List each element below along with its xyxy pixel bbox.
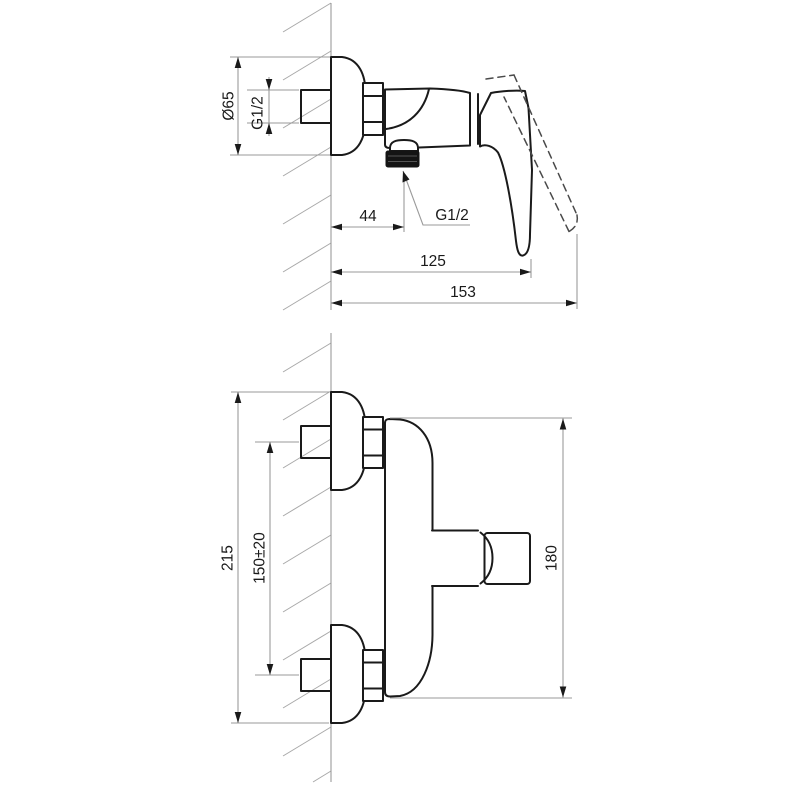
- dim-outlet-offset: 44: [331, 174, 404, 232]
- dim-text-outlet-thread: G1/2: [435, 207, 469, 224]
- wall-hatching-front: [283, 343, 331, 782]
- lever-handle-front: [431, 531, 531, 587]
- dim-text-outlet-offset: 44: [359, 208, 377, 225]
- drawing-page: Ø65 G1/2 44 G1/2: [0, 0, 800, 800]
- dim-depth-125: 125: [331, 253, 531, 278]
- mounting-nut: [363, 83, 383, 135]
- technical-drawing-canvas: Ø65 G1/2 44 G1/2: [0, 0, 800, 800]
- dim-text-inlet-thread: G1/2: [250, 96, 267, 130]
- mixer-body-front: [385, 419, 433, 697]
- lever-grip-end: [485, 533, 531, 584]
- outlet-knurled-nut: [386, 151, 419, 167]
- dim-text-flange-diameter: Ø65: [221, 91, 238, 120]
- dim-inlet-thread: G1/2: [247, 77, 299, 136]
- side-view: Ø65 G1/2 44 G1/2: [221, 3, 578, 310]
- dim-text-depth-153: 153: [450, 284, 476, 301]
- escutcheon: [331, 57, 366, 155]
- dim-text-depth-125: 125: [420, 253, 446, 270]
- dim-flange-diameter: Ø65: [221, 57, 331, 155]
- inlet-pipe: [301, 90, 331, 123]
- front-view: 215 150±20 180: [220, 333, 573, 782]
- wall-hatching: [283, 3, 331, 310]
- escutcheon-bottom: [331, 625, 366, 723]
- mounting-nut-top: [363, 417, 383, 468]
- dim-text-body-height: 180: [544, 545, 561, 571]
- leader-outlet-thread: G1/2: [403, 171, 471, 225]
- dim-text-inlet-spacing: 150±20: [252, 532, 269, 584]
- outlet-cap: [390, 140, 418, 151]
- mounting-nut-bottom: [363, 650, 383, 701]
- dim-text-height-215: 215: [220, 545, 237, 571]
- lever-handle: [480, 91, 532, 256]
- escutcheon-top: [331, 392, 366, 490]
- inlet-pipe-bottom: [301, 659, 331, 691]
